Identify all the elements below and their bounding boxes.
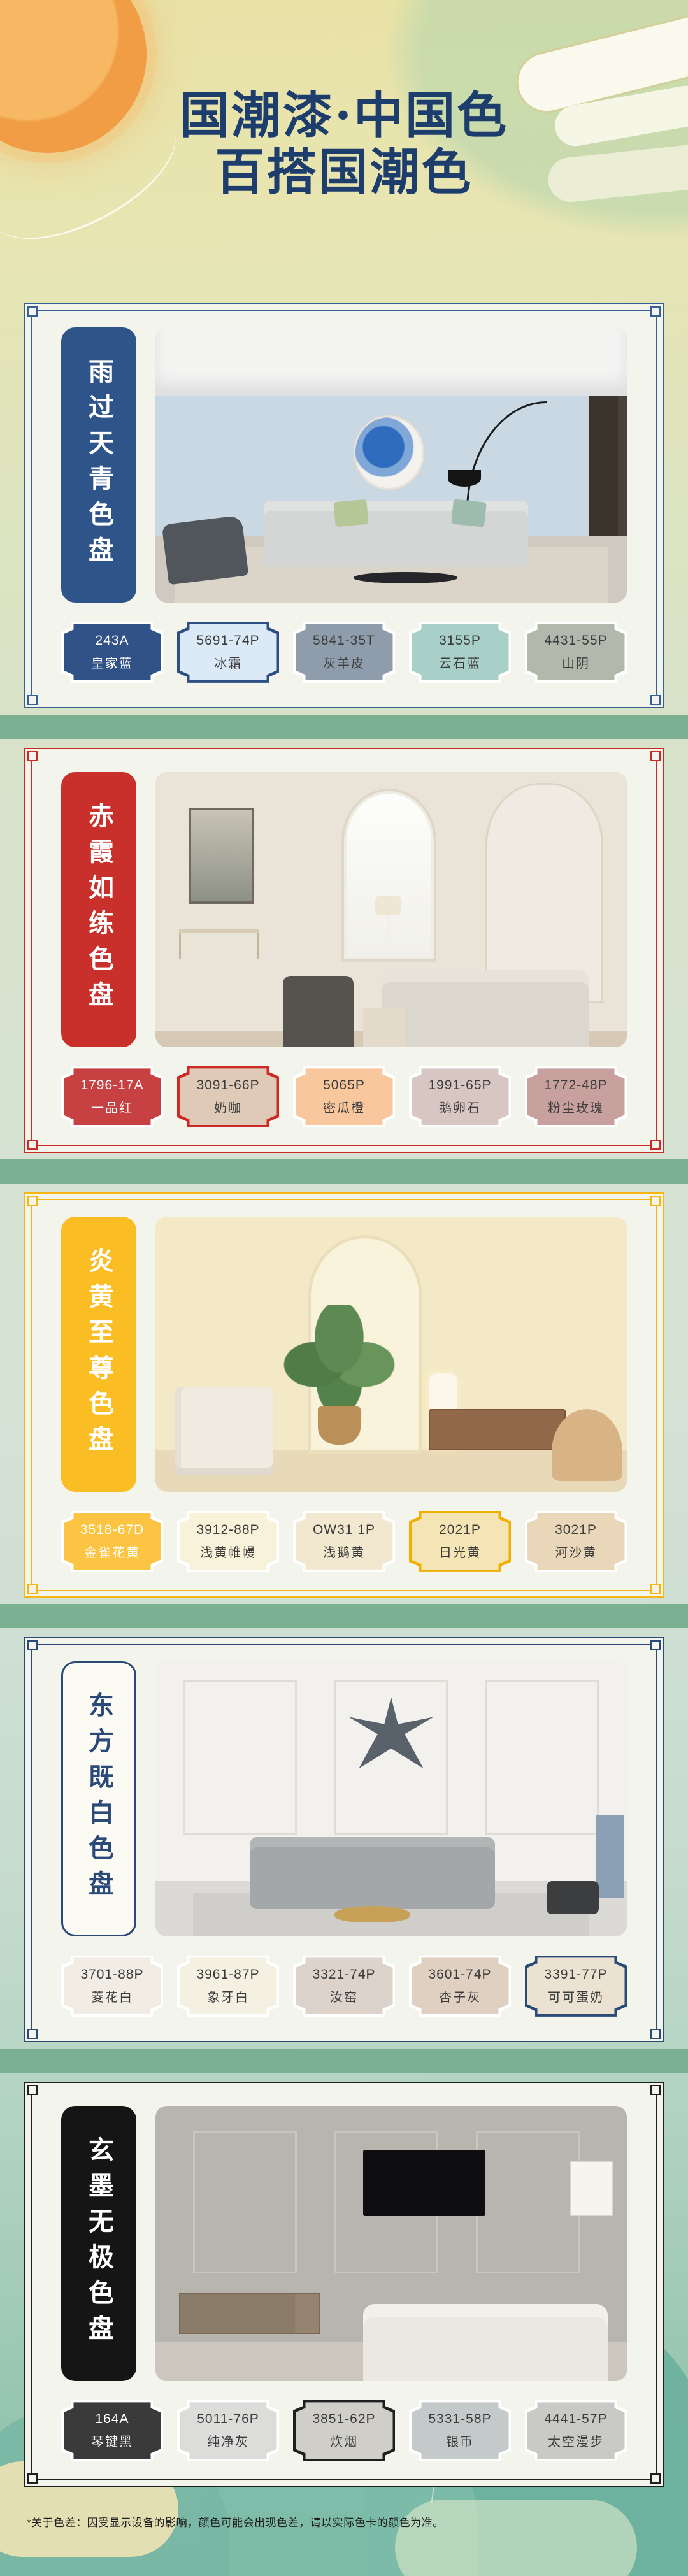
room-ceiling [155, 327, 627, 396]
color-swatch: 3518-67D 金雀花黄 [61, 1511, 163, 1572]
separator-band [0, 1604, 688, 1628]
swatch-fill: 3961-87P 象牙白 [180, 1957, 277, 2014]
coffee-table [354, 572, 457, 583]
color-swatch: 4431-55P 山阴 [525, 622, 627, 683]
paint-code: 3601-74P [428, 1967, 491, 1982]
paint-code: 2021P [439, 1522, 481, 1538]
paint-code: 3701-88P [80, 1967, 143, 1982]
swatch-row: 3701-88P 菱花白 3961-87P 象牙白 3321-74P 汝窑 [61, 1956, 627, 2017]
paint-code: 3391-77P [544, 1967, 607, 1982]
swatch-row: 164A 琴键黑 5011-76P 纯净灰 3851-62P 炊烟 [61, 2400, 627, 2461]
paint-code: 5691-74P [196, 633, 259, 648]
armchair [283, 976, 354, 1047]
frame-corner-ornament [650, 1196, 661, 1206]
palette-title-banner: 东方既白色盘 [61, 1661, 136, 1936]
poster: 国潮漆·中国色 百搭国潮色 雨过天青色盘 [0, 0, 688, 2576]
swatch-fill: 2021P 日光黄 [412, 1513, 509, 1570]
color-swatch: 3321-74P 汝窑 [293, 1956, 395, 2017]
palette-title: 玄墨无极色盘 [80, 2136, 117, 2351]
paint-code: 3321-74P [312, 1967, 375, 1982]
media-cabinet [179, 2293, 320, 2335]
palette-title-banner: 玄墨无极色盘 [61, 2106, 136, 2381]
palette-card-eastern-white: 东方既白色盘 [24, 1637, 664, 2042]
armchair [161, 515, 248, 585]
room-photo [155, 1661, 627, 1936]
paint-name: 浅黄帷幔 [200, 1542, 256, 1561]
poster-footer: *关于色差：因受显示设备的影响，颜色可能会出现色差，请以实际色卡的颜色为准。 [27, 2514, 688, 2529]
paint-code: 3091-66P [196, 1078, 259, 1093]
color-swatch: 5331-58P 银币 [409, 2400, 511, 2461]
paint-name: 可可蛋奶 [548, 1987, 604, 2005]
frame-corner-ornament [650, 695, 661, 705]
round-artwork [354, 415, 424, 490]
swatch-fill: 3518-67D 金雀花黄 [64, 1513, 161, 1570]
paint-code: 1772-48P [544, 1078, 607, 1093]
paint-name: 浅鹅黄 [323, 1542, 365, 1561]
color-swatch: 3961-87P 象牙白 [177, 1956, 279, 2017]
paint-name: 菱花白 [91, 1987, 133, 2005]
gold-coffee-table [334, 1906, 410, 1922]
paint-code: 1796-17A [80, 1078, 143, 1093]
throw-pillow [334, 499, 369, 527]
tall-cabinet [596, 1815, 624, 1898]
swatch-fill: 3391-77P 可可蛋奶 [527, 1957, 625, 2014]
room-photo [155, 1217, 627, 1492]
paint-code: OW31 1P [313, 1522, 375, 1538]
ottoman [547, 1881, 598, 1914]
swatch-fill: 3155P 云石蓝 [412, 624, 509, 680]
paint-name: 山阴 [562, 653, 590, 671]
color-swatch: 3091-66P 奶咖 [177, 1066, 279, 1127]
paint-name: 纯净灰 [207, 2431, 249, 2450]
swatch-fill: 5691-74P 冰霜 [180, 624, 277, 680]
paint-code: 3961-87P [196, 1967, 259, 1982]
color-swatch: 164A 琴键黑 [61, 2400, 163, 2461]
color-swatch: 4441-57P 太空漫步 [525, 2400, 627, 2461]
frame-corner-ornament [27, 751, 38, 761]
wall-panel [183, 1680, 297, 1835]
separator-band [0, 2049, 688, 2073]
palette-card-ink-black: 玄墨无极色盘 164A 琴键黑 [24, 2082, 664, 2487]
frame-corner-ornament [27, 1140, 38, 1150]
palette-title: 赤霞如练色盘 [80, 803, 117, 1017]
frame-corner-ornament [27, 2473, 38, 2484]
swatch-fill: 3021P 河沙黄 [527, 1513, 625, 1570]
swatch-fill: 5841-35T 灰羊皮 [296, 624, 393, 680]
color-swatch: 3155P 云石蓝 [409, 622, 511, 683]
room-photo [155, 2106, 627, 2381]
swatch-fill: 3601-74P 杏子灰 [412, 1957, 509, 2014]
frame-corner-ornament [650, 751, 661, 761]
palette-title-banner: 雨过天青色盘 [61, 327, 136, 603]
sofa [382, 970, 589, 1047]
color-swatch: 1796-17A 一品红 [61, 1066, 163, 1127]
paint-name: 密瓜橙 [323, 1098, 365, 1116]
swatch-fill: 243A 皇家蓝 [64, 624, 161, 680]
palette-title-banner: 炎黄至尊色盘 [61, 1217, 136, 1492]
frame-corner-ornament [27, 1640, 38, 1650]
color-swatch: 3851-62P 炊烟 [293, 2400, 395, 2461]
color-swatch: 3912-88P 浅黄帷幔 [177, 1511, 279, 1572]
swatch-fill: 1772-48P 粉尘玫瑰 [527, 1068, 625, 1125]
swatch-fill: 3912-88P 浅黄帷幔 [180, 1513, 277, 1570]
paint-code: 5065P [323, 1078, 365, 1093]
swatch-fill: 5011-76P 纯净灰 [180, 2402, 277, 2459]
paint-name: 鹅卵石 [439, 1098, 481, 1116]
swatch-row: 3518-67D 金雀花黄 3912-88P 浅黄帷幔 OW31 1P 浅鹅黄 [61, 1511, 627, 1572]
frame-corner-ornament [27, 2085, 38, 2095]
separator-band [0, 1159, 688, 1184]
swatch-fill: 164A 琴键黑 [64, 2402, 161, 2459]
paint-name: 太空漫步 [548, 2431, 604, 2450]
paint-name: 琴键黑 [91, 2431, 133, 2450]
color-swatch: 5065P 密瓜橙 [293, 1066, 395, 1127]
paint-name: 一品红 [91, 1098, 133, 1116]
sofa [363, 2304, 608, 2381]
paint-code: 3851-62P [312, 2412, 375, 2427]
swatch-row: 1796-17A 一品红 3091-66P 奶咖 5065P 密瓜橙 [61, 1066, 627, 1127]
wall-panel [485, 1680, 599, 1835]
paint-code: 5841-35T [313, 633, 375, 648]
paint-name: 炊烟 [330, 2431, 358, 2450]
bookshelf [589, 396, 627, 540]
paint-code: 1991-65P [428, 1078, 491, 1093]
wall-panel [193, 2131, 297, 2274]
paint-code: 4431-55P [544, 633, 607, 648]
color-swatch: 3601-74P 杏子灰 [409, 1956, 511, 2017]
swatch-fill: 4441-57P 太空漫步 [527, 2402, 625, 2459]
armchair [175, 1387, 273, 1475]
color-swatch: 5691-74P 冰霜 [177, 622, 279, 683]
table-lamp-stem [387, 915, 391, 940]
paint-name: 皇家蓝 [91, 653, 133, 671]
paint-name: 冰霜 [214, 653, 242, 671]
table-lamp-shade [375, 896, 401, 915]
swatch-fill: 1796-17A 一品红 [64, 1068, 161, 1125]
paint-name: 银币 [446, 2431, 474, 2450]
palette-title: 东方既白色盘 [80, 1692, 117, 1906]
paint-name: 金雀花黄 [84, 1542, 140, 1561]
console-table [179, 929, 259, 959]
paint-code: 3155P [439, 633, 481, 648]
paint-code: 243A [95, 633, 129, 648]
separator-band [0, 715, 688, 739]
frame-corner-ornament [650, 306, 661, 317]
room-photo [155, 772, 627, 1047]
paint-code: 5331-58P [428, 2412, 491, 2427]
paint-code: 3912-88P [196, 1522, 259, 1538]
palette-title: 雨过天青色盘 [80, 358, 117, 572]
swatch-fill: 3321-74P 汝窑 [296, 1957, 393, 2014]
frame-corner-ornament [27, 2029, 38, 2039]
swatch-fill: 5331-58P 银币 [412, 2402, 509, 2459]
tv-screen [363, 2150, 485, 2216]
frame-corner-ornament [27, 695, 38, 705]
paint-name: 云石蓝 [439, 653, 481, 671]
paint-name: 日光黄 [439, 1542, 481, 1561]
paint-name: 河沙黄 [555, 1542, 597, 1561]
paint-code: 5011-76P [197, 2412, 259, 2427]
color-swatch: 5011-76P 纯净灰 [177, 2400, 279, 2461]
side-table [363, 1008, 406, 1047]
wall-artwork [189, 808, 255, 904]
color-swatch: 1772-48P 粉尘玫瑰 [525, 1066, 627, 1127]
potted-plant [283, 1305, 396, 1420]
throw-pillow [451, 499, 487, 527]
paint-name: 奶咖 [214, 1098, 242, 1116]
frame-corner-ornament [650, 1140, 661, 1150]
palette-card-red-glow: 赤霞如练色盘 [24, 748, 664, 1153]
paint-code: 3021P [555, 1522, 597, 1538]
swatch-fill: 5065P 密瓜橙 [296, 1068, 393, 1125]
swatch-row: 243A 皇家蓝 5691-74P 冰霜 5841-35T 灰羊皮 [61, 622, 627, 683]
paint-name: 象牙白 [207, 1987, 249, 2005]
palette-card-imperial-yellow: 炎黄至尊色盘 3518-67D [24, 1192, 664, 1598]
frame-corner-ornament [650, 1640, 661, 1650]
paint-code: 3518-67D [80, 1522, 144, 1538]
color-swatch: 3021P 河沙黄 [525, 1511, 627, 1572]
frame-corner-ornament [27, 1584, 38, 1594]
color-swatch: 5841-35T 灰羊皮 [293, 622, 395, 683]
palette-card-rain-sky-blue: 雨过天青色盘 [24, 303, 664, 708]
color-swatch: OW31 1P 浅鹅黄 [293, 1511, 395, 1572]
palette-title-banner: 赤霞如练色盘 [61, 772, 136, 1047]
palette-title: 炎黄至尊色盘 [80, 1247, 117, 1461]
paint-name: 杏子灰 [439, 1987, 481, 2005]
poster-header: 国潮漆·中国色 百搭国潮色 [0, 0, 688, 201]
wall-artwork [570, 2161, 613, 2215]
paint-name: 灰羊皮 [323, 653, 365, 671]
wall-panel [476, 2131, 580, 2274]
plant-pot [318, 1406, 361, 1445]
lamp-shade [448, 470, 481, 487]
color-swatch: 243A 皇家蓝 [61, 622, 163, 683]
color-swatch: 3701-88P 菱花白 [61, 1956, 163, 2017]
paint-name: 汝窑 [330, 1987, 358, 2005]
room-photo [155, 327, 627, 603]
frame-corner-ornament [650, 1584, 661, 1594]
frame-corner-ornament [27, 306, 38, 317]
frame-corner-ornament [650, 2085, 661, 2095]
sofa [250, 1837, 495, 1908]
frame-corner-ornament [27, 1196, 38, 1206]
swatch-fill: 4431-55P 山阴 [527, 624, 625, 680]
swatch-fill: OW31 1P 浅鹅黄 [296, 1513, 393, 1570]
color-swatch: 1991-65P 鹅卵石 [409, 1066, 511, 1127]
poster-title-line1: 国潮漆·中国色 [0, 88, 688, 145]
frame-corner-ornament [650, 2473, 661, 2484]
color-swatch: 2021P 日光黄 [409, 1511, 511, 1572]
paint-name: 粉尘玫瑰 [548, 1098, 604, 1116]
wood-sideboard [429, 1409, 566, 1450]
swatch-fill: 3701-88P 菱花白 [64, 1957, 161, 2014]
paint-code: 4441-57P [544, 2412, 607, 2427]
frame-corner-ornament [650, 2029, 661, 2039]
sofa [264, 501, 527, 567]
swatch-fill: 3091-66P 奶咖 [180, 1068, 277, 1125]
color-swatch: 3391-77P 可可蛋奶 [525, 1956, 627, 2017]
color-disclaimer: *关于色差：因受显示设备的影响，颜色可能会出现色差，请以实际色卡的颜色为准。 [27, 2514, 688, 2529]
poster-title-line2: 百搭国潮色 [0, 145, 688, 201]
swatch-fill: 3851-62P 炊烟 [296, 2402, 393, 2459]
paint-code: 164A [95, 2412, 129, 2427]
swatch-fill: 1991-65P 鹅卵石 [412, 1068, 509, 1125]
